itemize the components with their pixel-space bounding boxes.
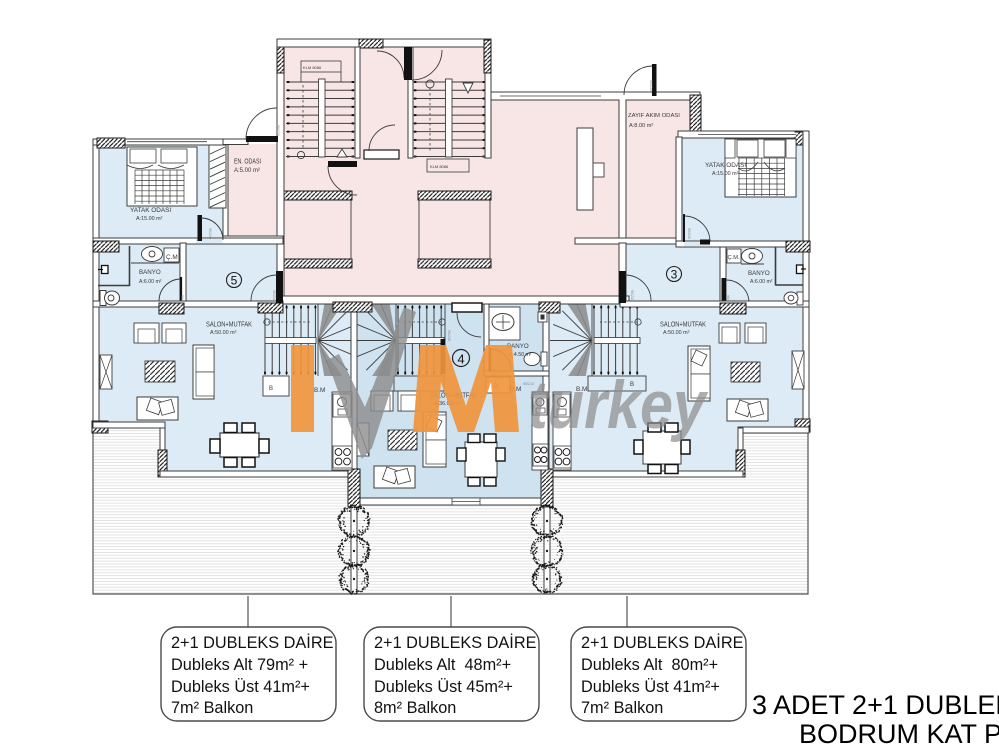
svg-text:90/210: 90/210 <box>447 330 451 341</box>
svg-text:A:6.00 m²: A:6.00 m² <box>750 279 773 285</box>
svg-text:3: 3 <box>671 268 678 282</box>
svg-text:3 ADET 2+1 DUBLEKS: 3 ADET 2+1 DUBLEKS <box>752 690 999 720</box>
svg-text:Ç.M: Ç.M <box>166 254 178 261</box>
svg-text:KLM 8086: KLM 8086 <box>430 164 449 169</box>
svg-text:2+1 DUBLEKS DAİRE: 2+1 DUBLEKS DAİRE <box>581 633 744 652</box>
svg-text:KLM 8086: KLM 8086 <box>303 65 322 70</box>
svg-text:7m² Balkon: 7m² Balkon <box>581 699 663 717</box>
svg-text:90/210: 90/210 <box>180 295 184 306</box>
svg-text:Ç.M.: Ç.M. <box>728 255 741 261</box>
svg-text:Dubleks Üst 41m²+: Dubleks Üst 41m²+ <box>581 678 720 696</box>
svg-text:90/210: 90/210 <box>272 290 276 301</box>
svg-text:90/210: 90/210 <box>630 290 634 301</box>
svg-text:Dubleks Üst 45m²+: Dubleks Üst 45m²+ <box>374 678 513 696</box>
svg-text:A:50.00 m²: A:50.00 m² <box>210 330 237 336</box>
svg-text:Dubleks Üst 41m²+: Dubleks Üst 41m²+ <box>171 678 310 696</box>
svg-text:ZAYIF AKIM ODASI: ZAYIF AKIM ODASI <box>628 113 680 119</box>
svg-text:BANYO: BANYO <box>139 269 161 276</box>
svg-text:SALON+MUTFAK: SALON+MUTFAK <box>660 320 706 329</box>
svg-text:SALON+MUTFAK: SALON+MUTFAK <box>206 320 252 329</box>
svg-text:90/210: 90/210 <box>208 228 212 239</box>
svg-text:90/210: 90/210 <box>726 295 730 306</box>
svg-text:2+1 DUBLEKS DAİRE: 2+1 DUBLEKS DAİRE <box>171 633 334 652</box>
svg-text:A:15.00 m²: A:15.00 m² <box>136 216 163 222</box>
svg-text:A:8.00 m²: A:8.00 m² <box>629 123 653 129</box>
svg-text:B: B <box>269 386 273 392</box>
svg-text:8m² Balkon: 8m² Balkon <box>374 699 456 717</box>
svg-text:90/210: 90/210 <box>649 80 653 91</box>
svg-text:A:5.00 m²: A:5.00 m² <box>234 168 260 174</box>
svg-text:YATAK ODASI: YATAK ODASI <box>705 162 746 169</box>
svg-text:Dubleks Alt 80m²+: Dubleks Alt 80m²+ <box>581 656 718 674</box>
svg-text:90/210: 90/210 <box>687 228 691 239</box>
svg-text:Dubleks Alt 79m² +: Dubleks Alt 79m² + <box>171 656 308 674</box>
svg-text:4: 4 <box>457 352 464 367</box>
svg-text:2+1 DUBLEKS DAİRE: 2+1 DUBLEKS DAİRE <box>374 633 537 652</box>
svg-text:A:50.00 m²: A:50.00 m² <box>663 330 690 336</box>
svg-text:5: 5 <box>231 274 238 288</box>
svg-text:A:6.00 m²: A:6.00 m² <box>139 279 162 285</box>
svg-text:A:15.00 m²: A:15.00 m² <box>712 171 739 177</box>
svg-text:90/210: 90/210 <box>276 125 280 136</box>
svg-text:turkey: turkey <box>528 367 709 443</box>
svg-text:BANYO: BANYO <box>748 270 770 277</box>
svg-text:YATAK ODASI: YATAK ODASI <box>130 207 171 214</box>
svg-text:7m² Balkon: 7m² Balkon <box>171 699 253 717</box>
svg-text:Dubleks Alt 48m²+: Dubleks Alt 48m²+ <box>374 656 511 674</box>
svg-text:B.M: B.M <box>314 387 325 394</box>
svg-text:BODRUM KAT PLANI: BODRUM KAT PLANI <box>799 719 999 749</box>
svg-text:EN. ODASI: EN. ODASI <box>234 159 261 166</box>
